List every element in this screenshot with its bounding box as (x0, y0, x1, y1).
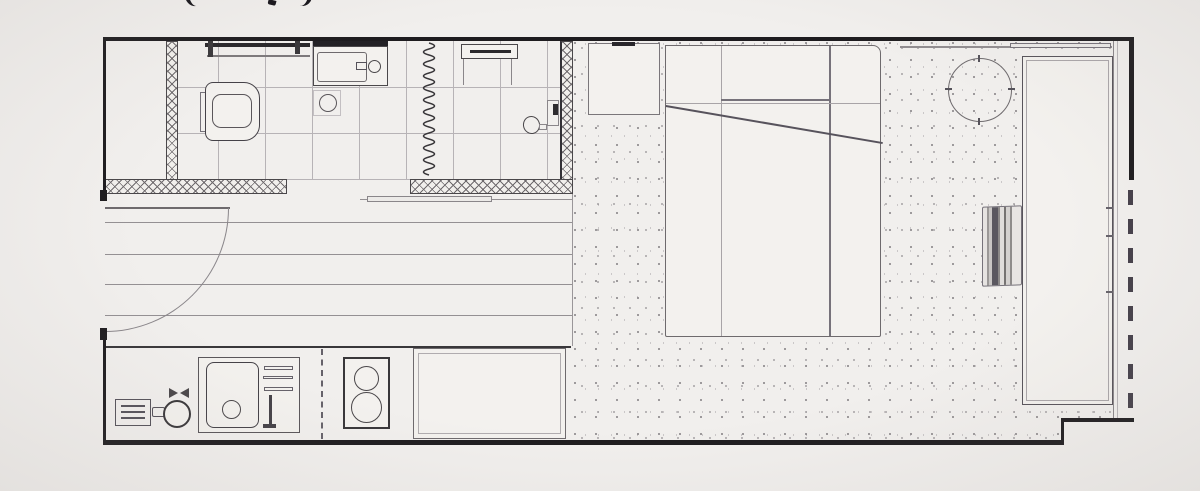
slatted-chair (982, 205, 1022, 286)
cropped-title-fragment-3 (300, 0, 312, 8)
table-tick (978, 55, 980, 62)
wall-bottom (103, 440, 1064, 445)
kitchen-sink-drain (222, 400, 241, 419)
shower-niche-shelf (470, 50, 511, 53)
sink-faucet-base (263, 424, 276, 428)
towel-rail-bracket (295, 41, 300, 54)
entry-door-swing-arc (105, 208, 229, 332)
wall-left-lower (103, 332, 106, 445)
door-jamb-upper (100, 190, 107, 201)
wall-right-upper (1129, 37, 1134, 180)
desk-counter (1022, 56, 1113, 405)
appliance-panel-slot (121, 417, 145, 419)
table-tick (945, 88, 952, 90)
wall-top (103, 37, 1134, 41)
shower-niche-side (511, 59, 512, 85)
window-dashed-line (1128, 190, 1133, 420)
floor-patch-outside-notch (1060, 424, 1136, 444)
blanket-edge-line (829, 46, 831, 336)
sink-faucet-stem (269, 395, 272, 427)
table-tick (978, 118, 980, 125)
hatched-wall-closet (166, 41, 178, 181)
stove-burner-large (351, 392, 382, 423)
floor-drain (319, 94, 337, 112)
kettle-lid-right (180, 388, 189, 398)
fridge-cabinet-inner (418, 353, 561, 434)
plank-line (105, 315, 572, 316)
shower-control-pad (553, 104, 558, 115)
towel-rail-line (207, 55, 310, 57)
glazing-line-outer (1117, 41, 1118, 422)
hatched-wall-bathroom-bottom-left (104, 179, 287, 194)
dish-rack-bar (264, 366, 293, 370)
double-bed (665, 45, 881, 337)
round-table (948, 58, 1012, 122)
stove-burner-small (354, 366, 379, 391)
kettle-body (163, 400, 191, 428)
toilet-seat (212, 94, 252, 128)
kettle-lid-left (169, 388, 178, 398)
counter-divider-dashed (321, 349, 323, 439)
shower-niche-side (463, 59, 464, 85)
door-threshold (367, 196, 492, 202)
table-tick (1008, 88, 1015, 90)
dish-rack-bar (264, 387, 293, 391)
towel-rail-bracket (208, 41, 213, 57)
appliance-panel-slot (121, 411, 145, 413)
glazing-line-inner (1113, 41, 1114, 422)
pillow-edge-line (721, 99, 831, 101)
nightstand-handle (612, 42, 635, 46)
cropped-title-fragment-1 (185, 0, 197, 8)
appliance-panel-slot (121, 405, 145, 407)
floor-material-divider (572, 193, 573, 346)
door-jamb-lower (100, 328, 107, 340)
desk-top-shelf (1010, 43, 1111, 48)
floor-plan-page: { "page": { "kind": "architectural floor… (0, 0, 1200, 491)
desk-inner-line (1026, 60, 1109, 401)
bed-fold-line-left (721, 46, 722, 336)
nightstand (588, 43, 660, 115)
blanket-fold-diagonal (666, 105, 883, 144)
shower-hose-link (539, 124, 547, 130)
hatched-wall-bathroom-right (560, 41, 573, 194)
floorplan-canvas (0, 0, 1200, 491)
dish-rack-bar (263, 376, 293, 379)
wall-bottom-right (1061, 418, 1134, 422)
sheet-line (666, 103, 880, 104)
wall-left-upper (103, 37, 106, 200)
accordion-partition (420, 42, 438, 179)
faucet-handle (356, 62, 367, 70)
cropped-title-fragment-2 (268, 0, 277, 6)
faucet-knob (368, 60, 381, 73)
hatched-wall-bathroom-bottom-right (410, 179, 573, 194)
